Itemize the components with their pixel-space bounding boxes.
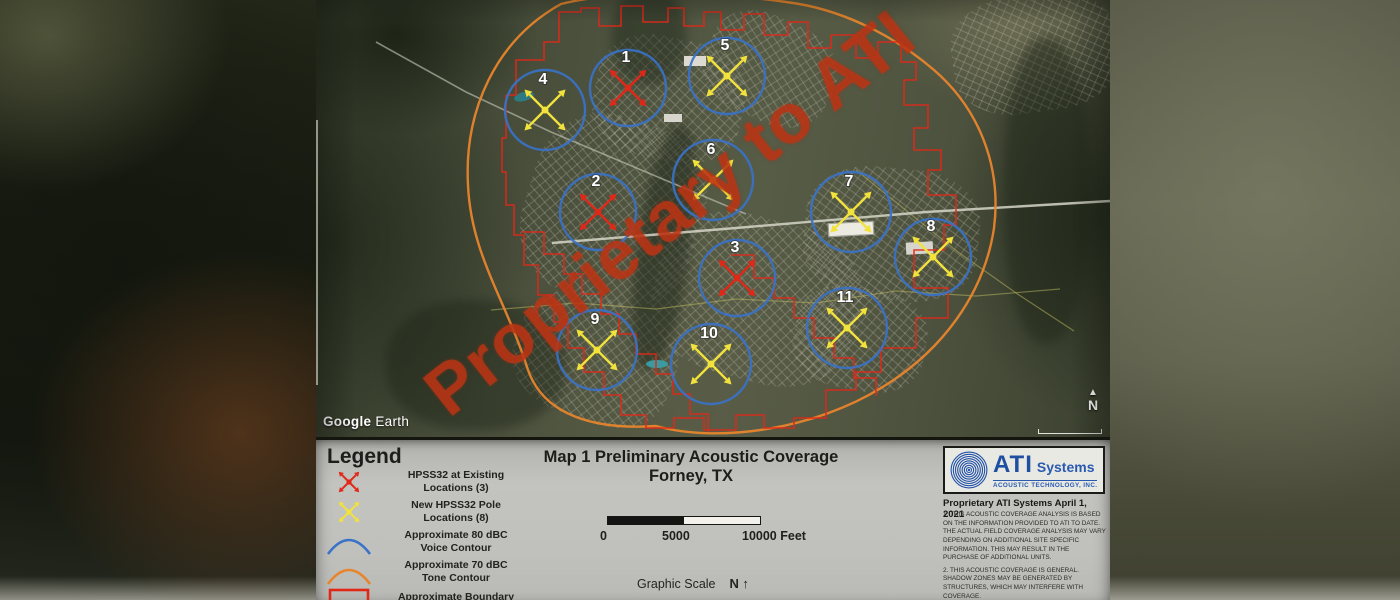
satellite-map: 1234567891011 Proprietary to ATI Google …	[316, 0, 1110, 437]
scanned-map-sheet: 1234567891011 Proprietary to ATI Google …	[316, 0, 1110, 600]
legend-label: Voice Contour	[421, 542, 492, 554]
legend-label: Approximate 80 dBC	[404, 529, 507, 541]
approximate-boundary-line	[731, 255, 876, 396]
scale-tick-0: 0	[600, 529, 607, 543]
north-indicator: ▲ N	[1081, 388, 1105, 412]
graphic-scale-label: Graphic Scale N ↑	[637, 576, 749, 591]
note-2: 2. THIS ACOUSTIC COVERAGE IS GENERAL. SH…	[943, 567, 1106, 600]
google-earth-attribution: Google Earth	[323, 414, 409, 429]
marker-number-label: 7	[845, 173, 854, 190]
blue-arc-icon	[322, 526, 376, 558]
north-arrow-icon: ↑	[742, 576, 749, 591]
info-panel: Legend HPSS32 at Existing Locations (3) …	[316, 437, 1110, 600]
marker-number-label: 2	[592, 173, 601, 190]
disclaimer-notes: 1. THIS ACOUSTIC COVERAGE ANALYSIS IS BA…	[943, 511, 1106, 600]
map-marker-10: 10	[671, 324, 751, 404]
legend-label: HPSS32 at Existing	[408, 469, 504, 481]
scale-bar	[607, 516, 761, 525]
screenshot-stage: 1234567891011 Proprietary to ATI Google …	[0, 0, 1400, 600]
google-scale-bar	[1038, 429, 1102, 434]
paper-edge	[316, 120, 318, 385]
map-marker-11: 11	[807, 288, 887, 368]
legend-label: Approximate 70 dBC	[404, 559, 507, 571]
legend-row-new-pole: New HPSS32 Pole Locations (8)	[322, 496, 570, 528]
scale-bar-black-segment	[608, 517, 684, 524]
marker-number-label: 4	[539, 71, 548, 88]
legend-row-voice-contour: Approximate 80 dBC Voice Contour	[322, 526, 570, 558]
ati-concentric-circles-logo	[949, 450, 989, 490]
red-x-marker-icon	[322, 466, 376, 498]
legend-label: Locations (8)	[423, 512, 488, 524]
marker-number-label: 11	[837, 289, 854, 306]
map-marker-4: 4	[505, 70, 585, 150]
map-marker-8: 8	[895, 218, 971, 295]
earth-wordmark: Earth	[375, 414, 409, 429]
north-label: N	[730, 576, 739, 591]
ati-tagline: ACOUSTIC TECHNOLOGY, INC.	[993, 480, 1097, 489]
ati-brand-sub: Systems	[1037, 459, 1095, 475]
legend-label: Approximate Boundary	[398, 591, 514, 600]
scale-bar-white-segment	[684, 517, 760, 524]
map-marker-1: 1	[590, 49, 666, 126]
scale-tick-5000: 5000	[662, 529, 690, 543]
google-wordmark: Google	[323, 414, 371, 429]
map-marker-7: 7	[811, 172, 891, 252]
legend-label: Locations (3)	[423, 482, 488, 494]
marker-number-label: 8	[927, 218, 936, 235]
legend-row-boundary: Approximate Boundary	[322, 582, 570, 600]
marker-number-label: 10	[700, 325, 718, 342]
marker-number-label: 1	[622, 49, 631, 66]
map-title: Map 1 Preliminary Acoustic Coverage	[516, 448, 866, 467]
ati-logo-box: ATI Systems ACOUSTIC TECHNOLOGY, INC.	[943, 446, 1105, 494]
note-1: 1. THIS ACOUSTIC COVERAGE ANALYSIS IS BA…	[943, 511, 1106, 563]
blurred-backdrop-left	[0, 0, 316, 600]
ati-brand-main: ATI	[993, 451, 1033, 479]
marker-number-label: 5	[721, 37, 730, 54]
red-rect-icon	[322, 582, 376, 600]
yellow-x-marker-icon	[322, 496, 376, 528]
scale-tick-10000: 10000 Feet	[742, 529, 806, 543]
blurred-backdrop-right	[1110, 0, 1400, 600]
map-subtitle: Forney, TX	[516, 467, 866, 486]
legend-label: New HPSS32 Pole	[411, 499, 501, 511]
marker-number-label: 3	[731, 239, 740, 256]
